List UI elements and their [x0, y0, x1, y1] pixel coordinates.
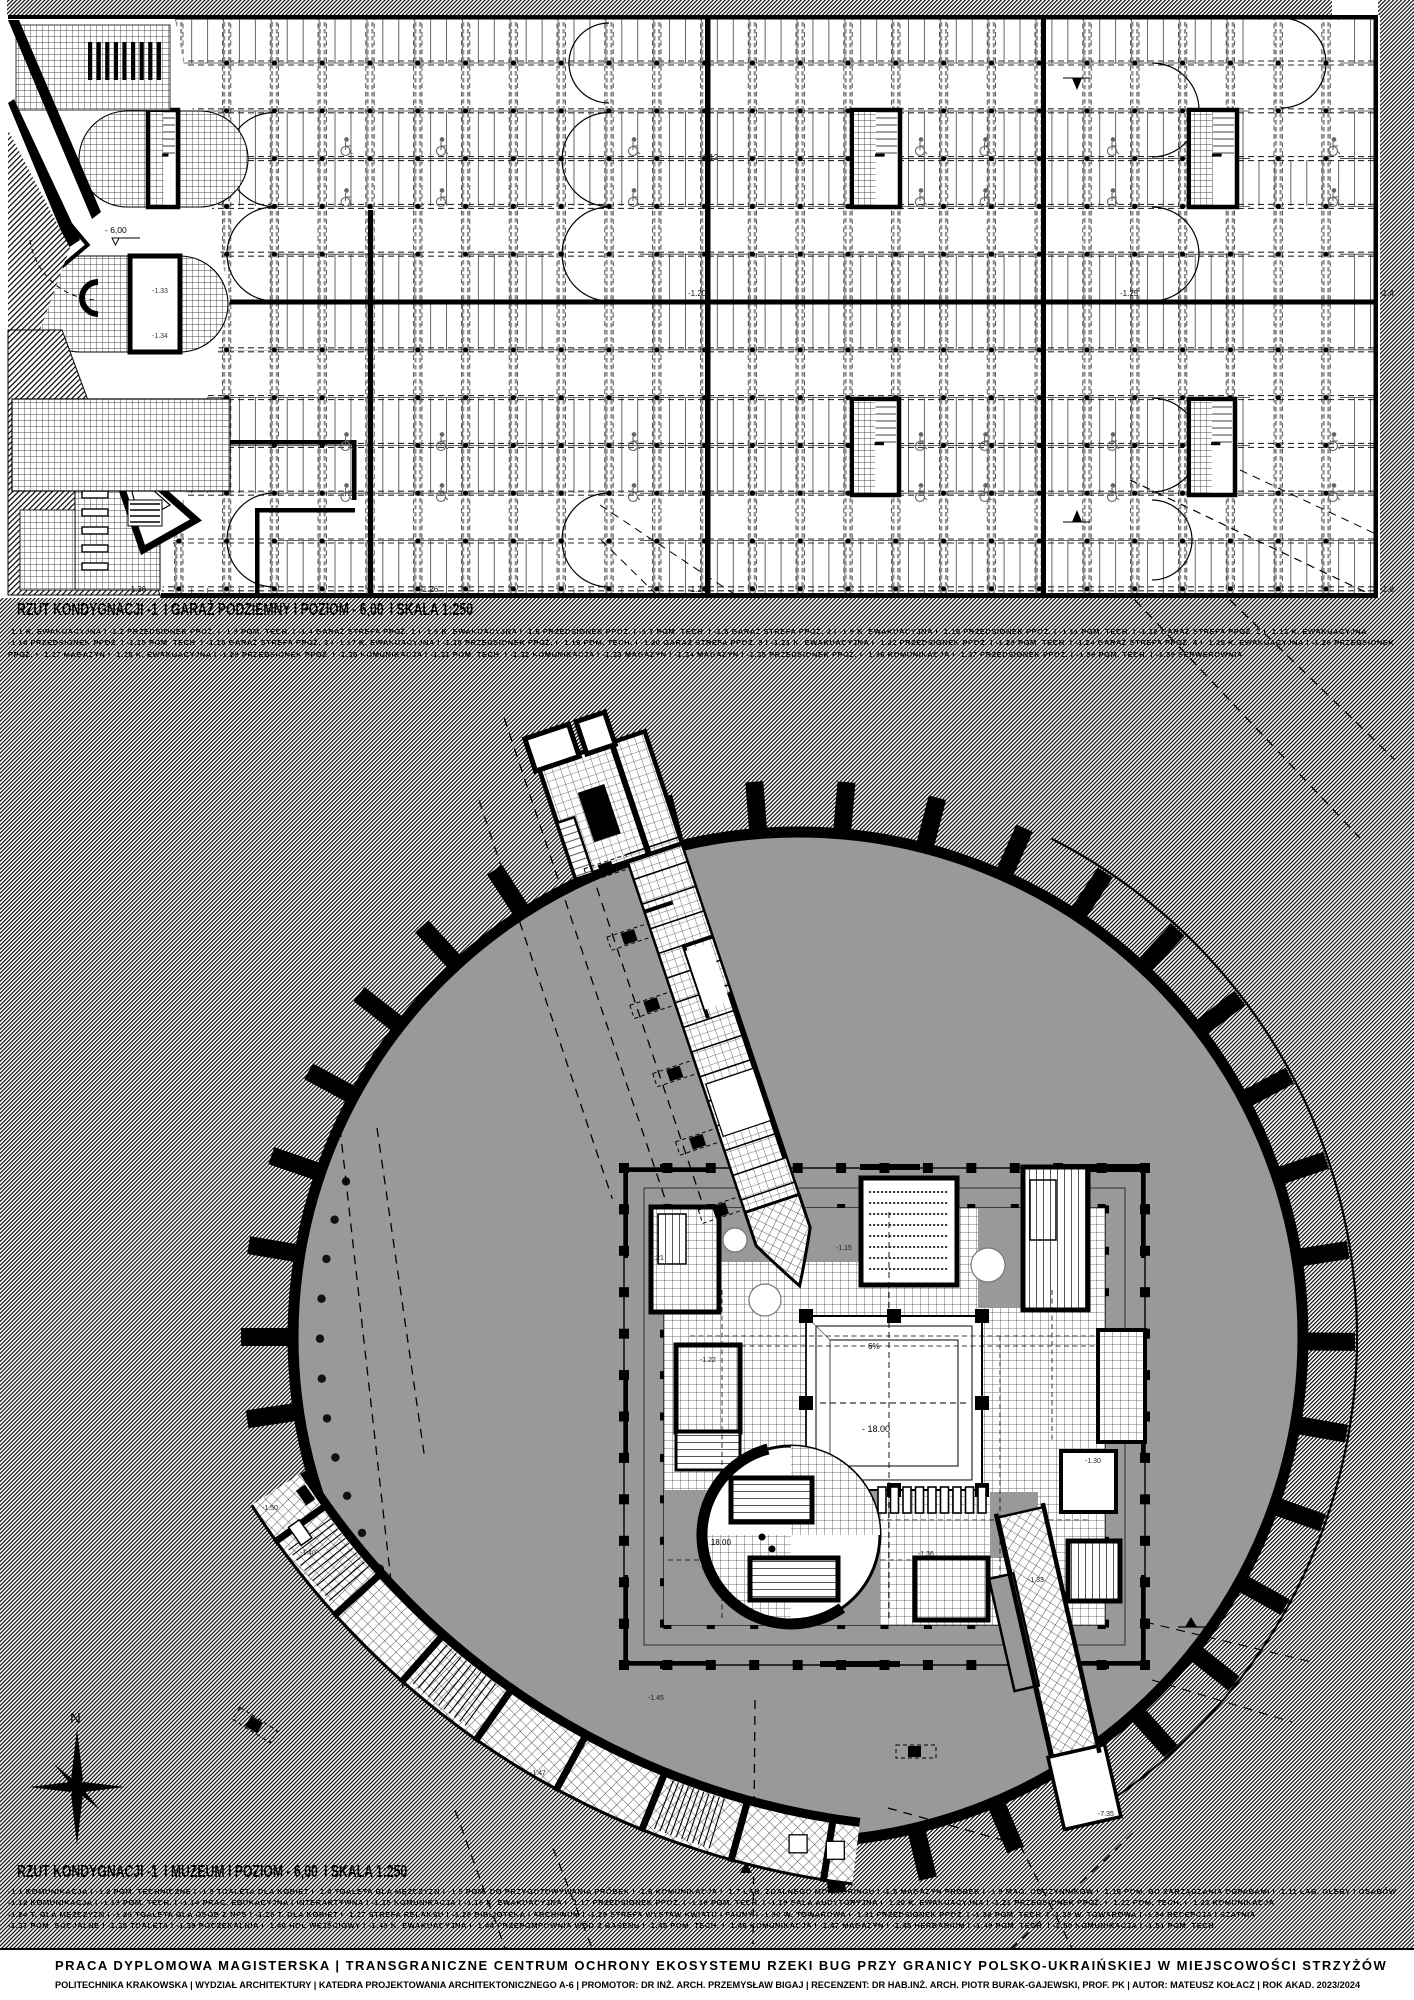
svg-text:-1.33: -1.33 [152, 288, 168, 295]
svg-text:-1.36: -1.36 [128, 585, 147, 594]
svg-text:-1.4: -1.4 [1380, 289, 1394, 298]
svg-text:-1.36: -1.36 [918, 1551, 934, 1558]
svg-text:-1.8: -1.8 [1380, 585, 1394, 594]
svg-text:-1.25: -1.25 [1120, 289, 1139, 298]
svg-text:-1.20: -1.20 [688, 289, 707, 298]
svg-text:N: N [70, 1710, 81, 1727]
svg-text:-1.33: -1.33 [1028, 1577, 1044, 1584]
svg-text:-1.30: -1.30 [1085, 1458, 1101, 1465]
svg-text:-1.26: -1.26 [420, 585, 439, 594]
svg-text:-1.40: -1.40 [300, 1550, 316, 1557]
svg-text:-1.24: -1.24 [688, 585, 707, 594]
svg-text:-1.21: -1.21 [648, 1255, 664, 1262]
svg-text:- 18.00: - 18.00 [862, 1424, 890, 1434]
svg-text:- 6,00: - 6,00 [105, 225, 127, 235]
svg-text:-1.22: -1.22 [700, 1357, 716, 1364]
svg-text:6%: 6% [868, 1342, 880, 1351]
svg-text:-7.35: -7.35 [1098, 1811, 1114, 1818]
svg-text:-1.47: -1.47 [530, 1770, 546, 1777]
svg-text:-1.12: -1.12 [700, 153, 719, 162]
svg-text:-1.50: -1.50 [262, 1505, 278, 1512]
svg-text:- 18.00: - 18.00 [706, 1538, 731, 1547]
svg-text:-1.45: -1.45 [648, 1695, 664, 1702]
svg-text:-1.15: -1.15 [836, 1245, 852, 1252]
svg-text:-1.34: -1.34 [152, 333, 168, 340]
